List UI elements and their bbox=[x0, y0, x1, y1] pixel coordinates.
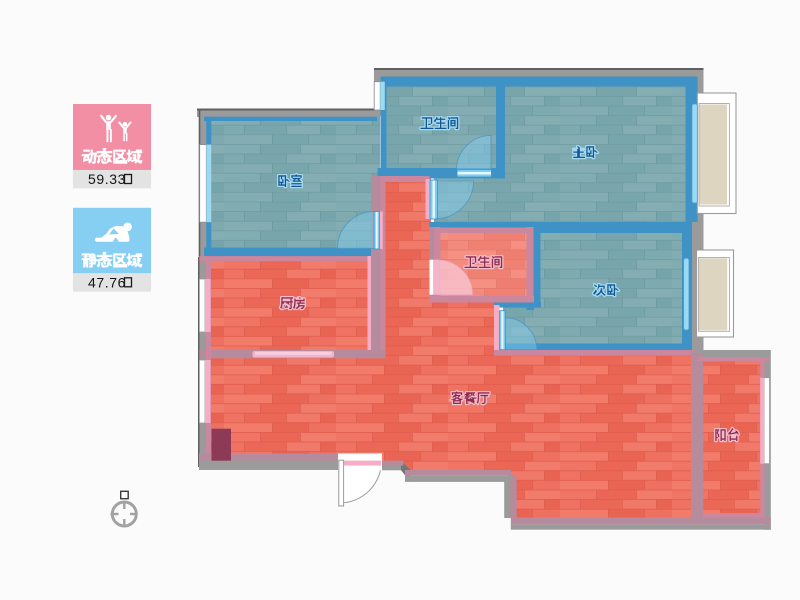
svg-text:59.33: 59.33 bbox=[88, 171, 126, 187]
svg-text:47.76: 47.76 bbox=[88, 274, 126, 290]
